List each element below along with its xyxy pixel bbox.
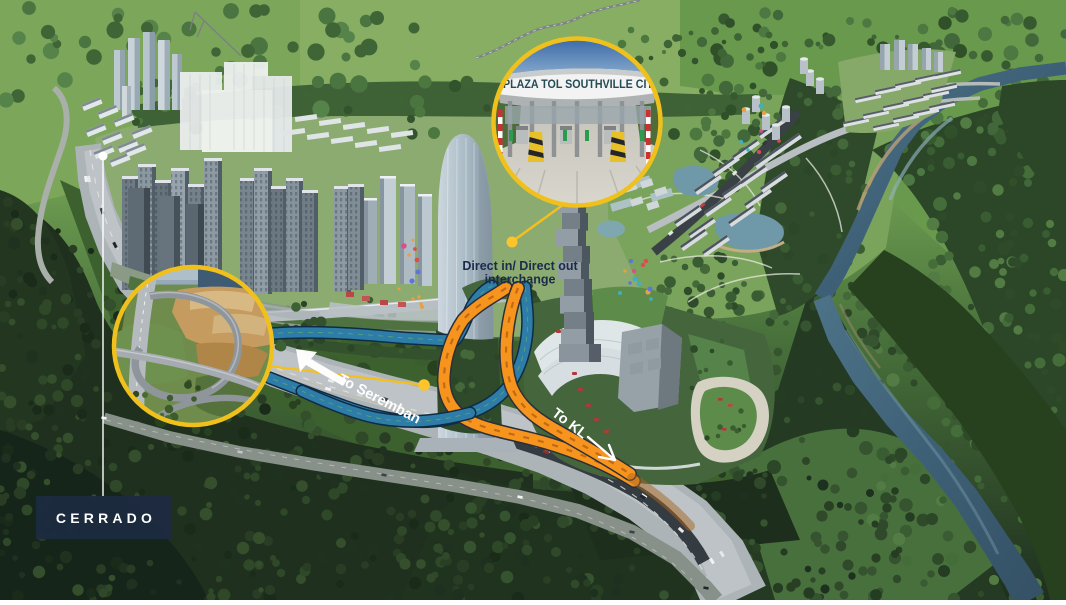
svg-text:CERRADO: CERRADO [56,510,156,526]
svg-text:interchange: interchange [485,273,556,287]
svg-text:PLAZA TOL SOUTHVILLE CIT: PLAZA TOL SOUTHVILLE CIT [503,77,654,91]
svg-text:Direct in/ Direct out: Direct in/ Direct out [462,259,578,273]
